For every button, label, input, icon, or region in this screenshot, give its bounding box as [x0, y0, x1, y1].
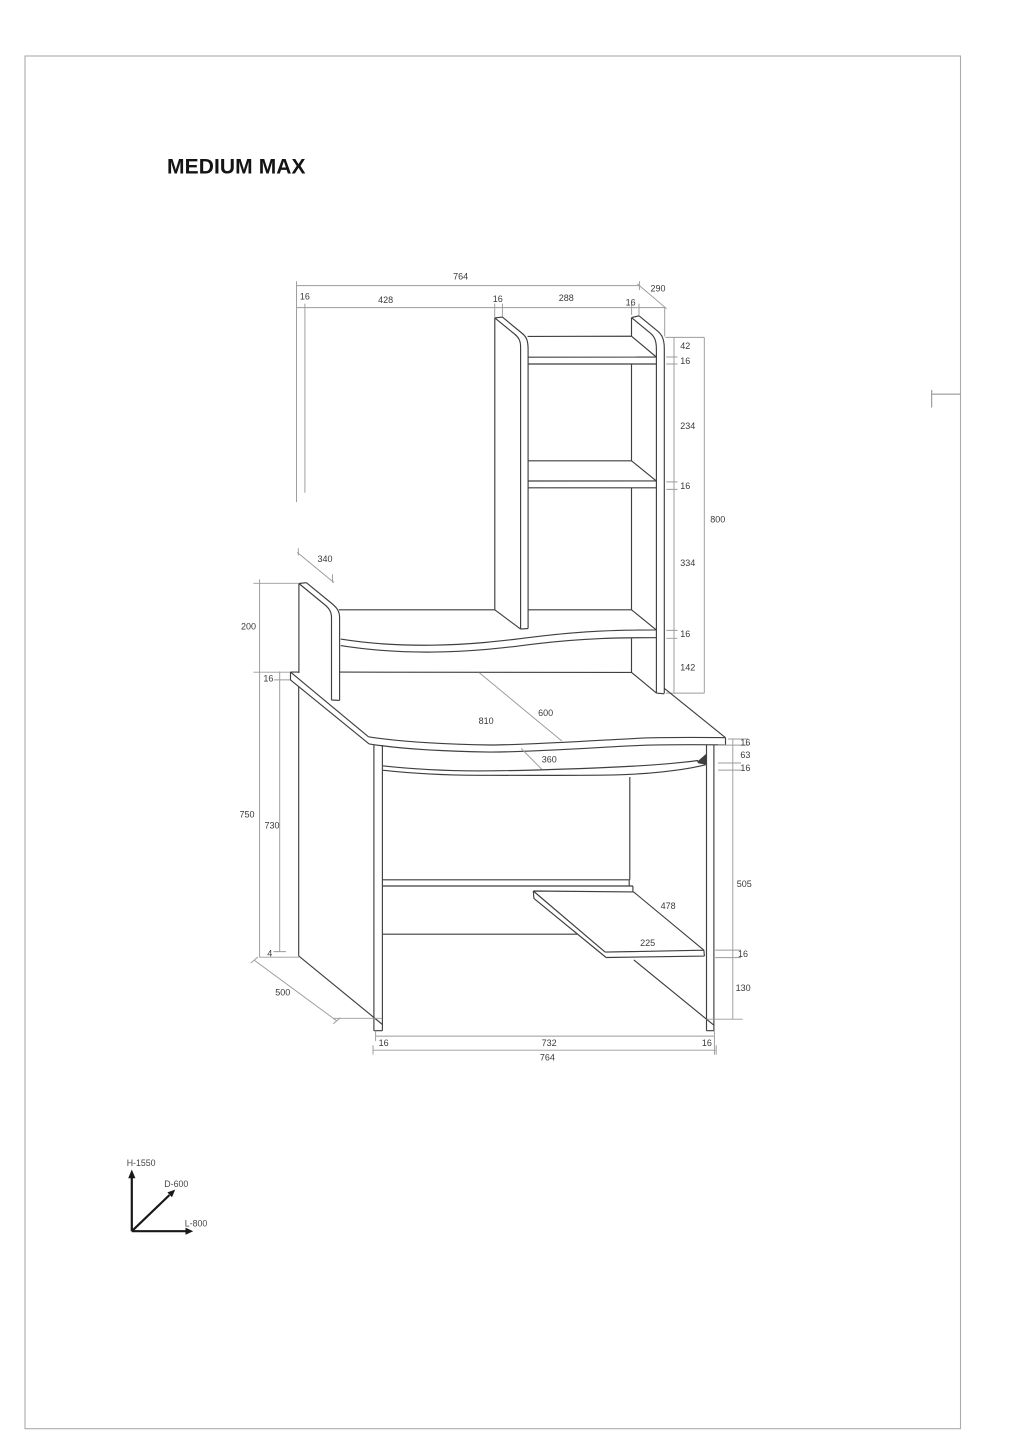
svg-text:764: 764 [540, 1053, 555, 1063]
svg-text:225: 225 [640, 938, 655, 948]
svg-text:MEDIUM MAX: MEDIUM MAX [167, 156, 306, 179]
svg-text:600: 600 [538, 708, 553, 718]
svg-text:340: 340 [317, 554, 332, 564]
svg-text:42: 42 [680, 341, 690, 351]
svg-text:730: 730 [264, 821, 279, 831]
svg-text:142: 142 [680, 662, 695, 672]
svg-text:800: 800 [710, 515, 725, 525]
svg-text:63: 63 [740, 750, 750, 760]
svg-text:H-1550: H-1550 [127, 1158, 156, 1168]
svg-text:16: 16 [740, 763, 750, 773]
svg-text:4: 4 [267, 948, 272, 958]
svg-text:732: 732 [542, 1038, 557, 1048]
svg-text:810: 810 [479, 716, 494, 726]
svg-text:16: 16 [379, 1038, 389, 1048]
svg-text:16: 16 [680, 481, 690, 491]
svg-text:478: 478 [661, 901, 676, 911]
svg-text:16: 16 [263, 674, 273, 684]
svg-text:16: 16 [738, 949, 748, 959]
svg-text:130: 130 [736, 983, 751, 993]
svg-text:16: 16 [300, 291, 310, 301]
svg-text:290: 290 [650, 283, 665, 293]
svg-text:428: 428 [378, 295, 393, 305]
svg-text:360: 360 [542, 755, 557, 765]
svg-text:16: 16 [493, 294, 503, 304]
svg-text:764: 764 [453, 271, 468, 281]
svg-text:16: 16 [680, 356, 690, 366]
svg-text:16: 16 [740, 738, 750, 748]
svg-text:234: 234 [680, 421, 695, 431]
svg-text:16: 16 [702, 1038, 712, 1048]
svg-text:505: 505 [737, 879, 752, 889]
svg-text:288: 288 [559, 293, 574, 303]
svg-text:16: 16 [626, 298, 636, 308]
svg-text:750: 750 [239, 810, 254, 820]
svg-text:500: 500 [275, 987, 290, 997]
svg-text:L-800: L-800 [185, 1218, 208, 1228]
svg-text:16: 16 [680, 629, 690, 639]
svg-text:D-600: D-600 [164, 1179, 188, 1189]
svg-text:334: 334 [680, 558, 695, 568]
svg-text:200: 200 [241, 622, 256, 632]
